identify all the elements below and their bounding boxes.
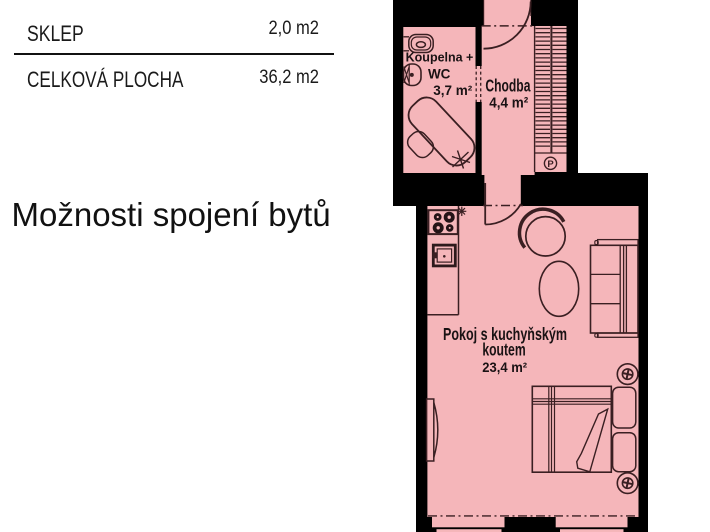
svg-text:Koupelna +: Koupelna + [406, 51, 474, 65]
svg-text:P: P [547, 159, 554, 170]
svg-text:WC: WC [428, 67, 451, 82]
svg-text:23,4 m²: 23,4 m² [482, 359, 527, 375]
svg-text:koutem: koutem [482, 341, 525, 361]
svg-text:4,4 m²: 4,4 m² [489, 95, 528, 112]
svg-text:Chodba: Chodba [485, 76, 531, 96]
svg-text:3,7 m²: 3,7 m² [433, 83, 473, 98]
